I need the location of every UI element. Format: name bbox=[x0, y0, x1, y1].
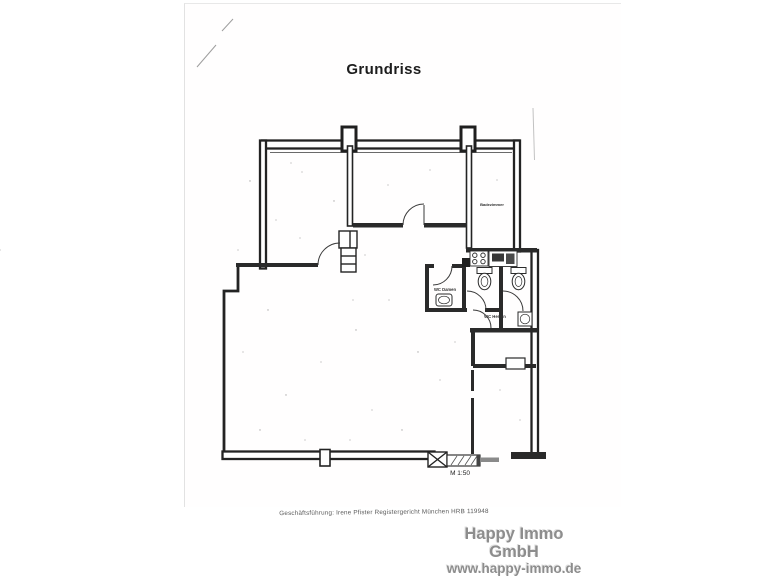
interior-partitions bbox=[236, 146, 546, 459]
wall-pillar bbox=[462, 258, 470, 267]
room-label-wc-herren: WC Herren bbox=[484, 314, 506, 319]
agency-website: www.happy-immo.de bbox=[438, 562, 590, 576]
room-label-top-right: Badezimmer bbox=[480, 202, 504, 207]
scale-label: M 1:50 bbox=[450, 470, 470, 477]
wall-box-fixture bbox=[506, 358, 525, 369]
toilet-icon bbox=[511, 268, 526, 290]
agency-branding: Happy Immo GmbH www.happy-immo.de bbox=[438, 526, 590, 576]
plumbing-shaft bbox=[339, 231, 357, 272]
kitchenette bbox=[462, 251, 517, 267]
sink-counter-icon bbox=[489, 251, 517, 267]
big-room-left-wall bbox=[224, 267, 238, 453]
exterior-walls bbox=[223, 141, 539, 460]
shaft-x-box bbox=[428, 452, 447, 467]
washbasin-icon bbox=[436, 294, 452, 306]
stove-icon bbox=[470, 251, 488, 266]
toilet-icon bbox=[477, 268, 492, 290]
room-label-wc-damen: WC Damen bbox=[434, 287, 457, 292]
floor-plan-drawing: Badezimmer WC Damen WC Herren M 1:50 bbox=[0, 0, 768, 567]
washbasin-icon bbox=[518, 312, 532, 326]
agency-name: Happy Immo GmbH bbox=[438, 526, 590, 562]
entry-door-sill bbox=[447, 455, 499, 466]
scan-artifacts bbox=[197, 19, 535, 160]
window-post bbox=[320, 450, 330, 467]
